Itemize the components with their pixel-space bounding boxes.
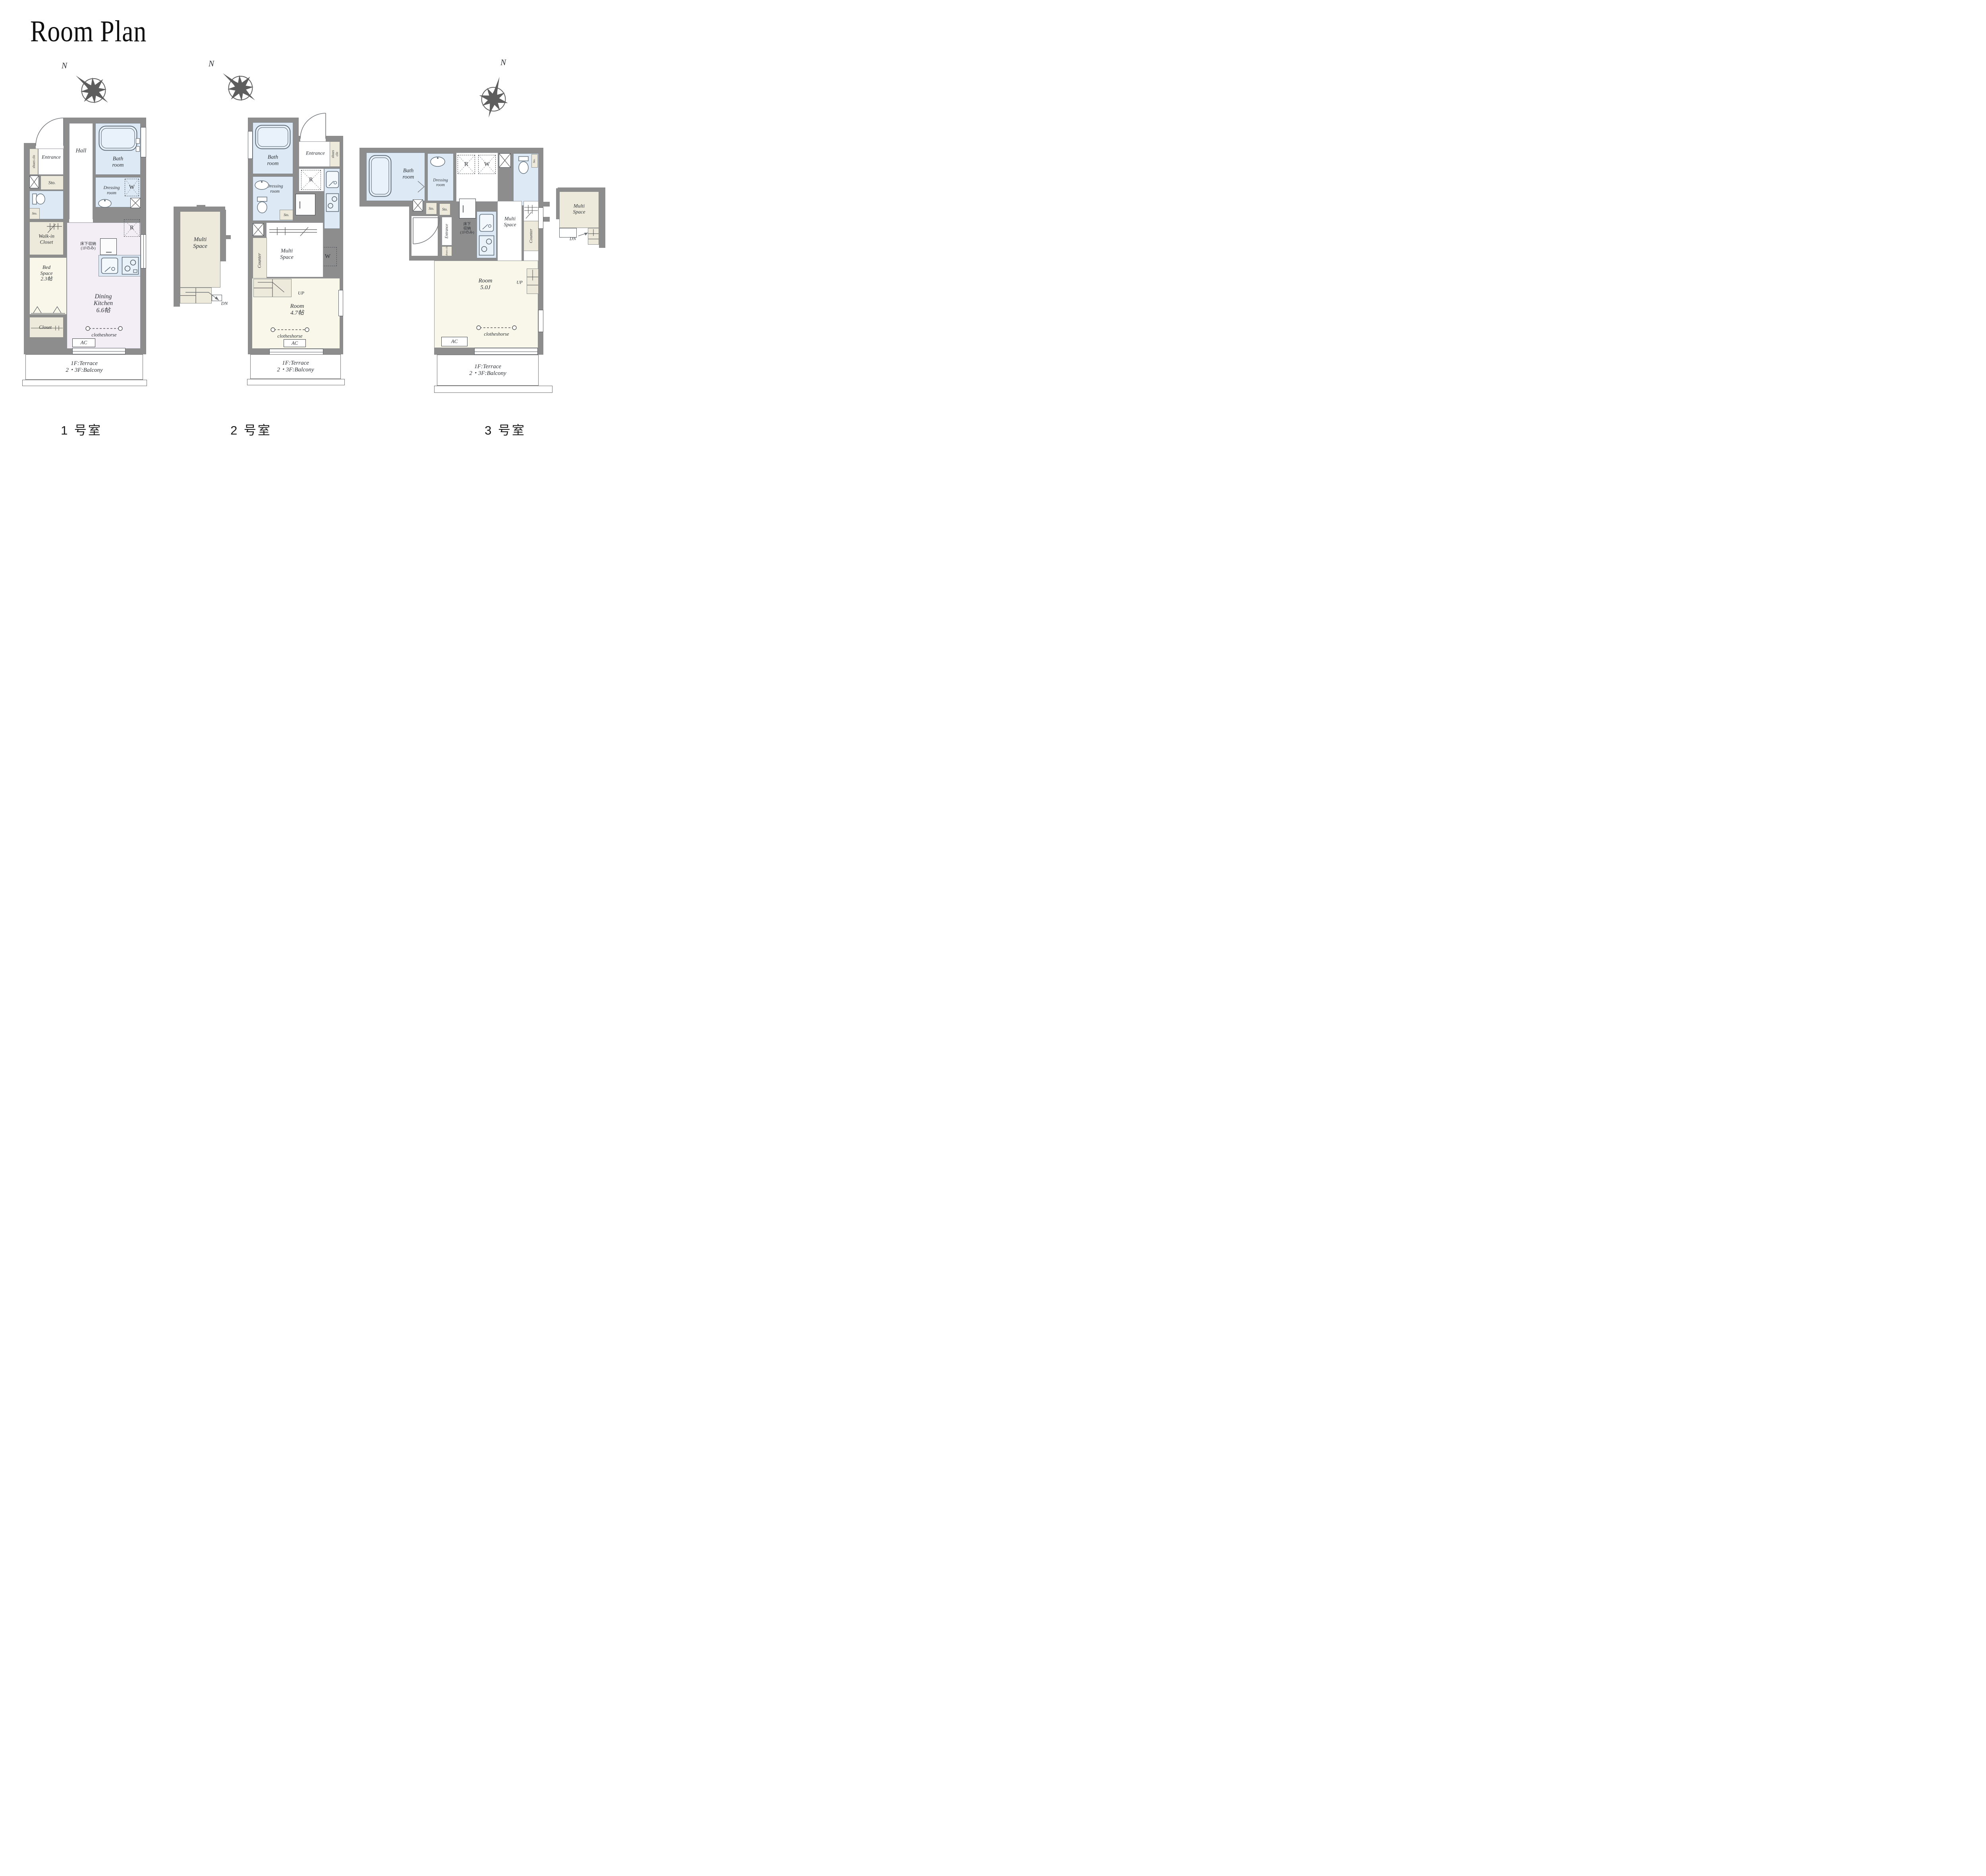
stove-icon	[479, 235, 495, 256]
storage-label: Sto.	[48, 180, 56, 185]
kitchen-sink-icon	[479, 214, 494, 232]
terrace-label: 1F:Terrace 2・3F:Balcony	[66, 360, 102, 374]
multi-space-label: Multi Space	[280, 248, 293, 260]
up-label: UP	[298, 290, 304, 296]
wall	[220, 210, 226, 261]
kitchen-sink-icon	[101, 257, 118, 274]
compass-north-label: N	[62, 61, 67, 71]
unit-2-label: 2 号室	[230, 420, 272, 438]
hanger-rod-icon	[47, 223, 62, 234]
multi-space-label: Multi Space	[573, 203, 585, 214]
multi-space-unit-1: Multi Space DN	[174, 205, 234, 312]
compass-icon	[473, 75, 514, 120]
terrace-step	[22, 380, 147, 386]
multi-space-label: Multi Space	[193, 236, 207, 250]
compass-icon	[73, 67, 114, 111]
stairs	[253, 279, 292, 297]
washer-label: W	[129, 184, 135, 191]
underfloor-storage-hatch	[296, 194, 315, 215]
shoes-closet-label: shoes clo	[32, 155, 36, 168]
wall	[599, 187, 605, 248]
terrace-label: 1F:Terrace 2・3F:Balcony	[277, 360, 314, 373]
window	[338, 290, 343, 316]
up-label: UP	[516, 280, 522, 286]
toilet-icon	[32, 193, 45, 210]
hall-floor	[69, 123, 93, 221]
pipe-shaft-icon	[130, 198, 141, 208]
underfloor-storage-hatch	[459, 199, 476, 218]
refrigerator-label: R	[309, 177, 313, 184]
room-plan-page: Room Plan N N N	[0, 0, 624, 469]
bathroom-label: Bath room	[267, 154, 278, 166]
unit-1-label: 1 号室	[61, 420, 102, 438]
hanger-rod-icon	[524, 203, 538, 219]
underfloor-storage-hatch	[100, 238, 117, 255]
compass-north-label: N	[500, 58, 506, 68]
page-title: Room Plan	[30, 14, 147, 49]
counter-label: Counter	[529, 229, 533, 243]
ac-label: AC	[451, 339, 458, 345]
stair-arrow	[578, 231, 590, 238]
bath-niche	[136, 138, 140, 144]
stove-icon	[326, 193, 339, 212]
floorplan-unit-1: Entrance shoes clo Sto. Sto. Walk-in Clo…	[22, 115, 157, 393]
bath-niche	[136, 146, 140, 152]
pipe-shaft-icon	[253, 223, 264, 236]
terrace-step	[434, 386, 553, 393]
stair-arrow	[185, 290, 225, 303]
bed-space-label: Bed Space 2.3帖	[40, 265, 52, 282]
multi-space-unit-3: Multi Space DN	[555, 185, 615, 255]
clotheshorse-label: clotheshorse	[277, 333, 302, 339]
sliding-door-icon	[31, 305, 65, 314]
walkin-closet-label: Walk-in Closet	[39, 233, 54, 245]
bathroom-label: Bath room	[112, 156, 124, 168]
underfloor-storage-label: 床下 収納 (1Fのみ)	[460, 222, 474, 235]
clotheshorse-label: clotheshorse	[91, 332, 116, 338]
unit-3-label: 3 号室	[485, 420, 526, 438]
dressing-room-label: Dressing room	[103, 185, 120, 196]
closet-label: Closet	[39, 325, 52, 330]
entrance-floor	[38, 149, 64, 175]
window-sliding	[474, 348, 538, 355]
floorplan-unit-3: Bath room Dressing room R W Sto. S	[357, 143, 560, 421]
toilet-storage-label: Sto.	[32, 212, 37, 216]
compass-north-label: N	[209, 59, 214, 69]
window	[538, 310, 543, 332]
room-label: Room 5.0J	[479, 278, 493, 291]
washbasin-icon	[254, 180, 269, 191]
window	[248, 131, 253, 159]
entrance-label: Entrance	[42, 155, 61, 160]
multi-space-label: Multi Space	[504, 216, 516, 227]
stove-icon	[122, 257, 139, 275]
clotheshorse-icon	[270, 327, 310, 332]
bathtub-icon	[255, 125, 291, 149]
washer-label: W	[325, 253, 330, 260]
pipe-shaft-icon	[29, 176, 39, 188]
hall-label: Hall	[76, 148, 87, 155]
washbasin-icon	[98, 199, 112, 208]
window-sliding	[72, 348, 126, 354]
window	[538, 207, 543, 229]
window	[141, 127, 146, 157]
wall	[556, 188, 559, 219]
hanger-rod-icon	[269, 226, 317, 237]
terrace-step	[247, 379, 345, 385]
stair-step	[559, 228, 577, 238]
counter-label: Counter	[257, 253, 263, 268]
dining-kitchen-label: Dining Kitchen 6.6帖	[94, 293, 113, 314]
entrance-label: Entrance	[306, 151, 325, 156]
ac-label: AC	[292, 340, 298, 346]
refrigerator-label: R	[130, 225, 134, 232]
ac-label: AC	[81, 340, 87, 346]
toilet-icon	[256, 196, 269, 214]
room-label: Room 4.7帖	[290, 303, 304, 317]
compass-icon	[220, 64, 261, 109]
window	[141, 234, 146, 269]
storage-label: Sto.	[284, 213, 289, 217]
clotheshorse-icon	[476, 325, 517, 330]
clotheshorse-label: clotheshorse	[484, 331, 509, 337]
wall	[197, 205, 205, 207]
down-label: DN	[570, 237, 576, 242]
down-label: DN	[221, 301, 228, 306]
stairs	[527, 269, 539, 294]
shoes-closet-label: shoes clo	[331, 148, 339, 160]
multi-space-floor	[497, 201, 522, 268]
wall	[558, 187, 604, 191]
clotheshorse-icon	[85, 326, 123, 331]
floorplan-unit-2: Bath room Entrance shoes clo R Dressing …	[245, 115, 347, 393]
wall	[174, 207, 180, 307]
bathtub-icon	[99, 126, 137, 151]
kitchen-sink-icon	[326, 171, 339, 188]
wall	[226, 235, 231, 239]
terrace-label: 1F:Terrace 2・3F:Balcony	[469, 363, 506, 377]
underfloor-storage-label: 床下収納 (1Fのみ)	[80, 242, 96, 251]
